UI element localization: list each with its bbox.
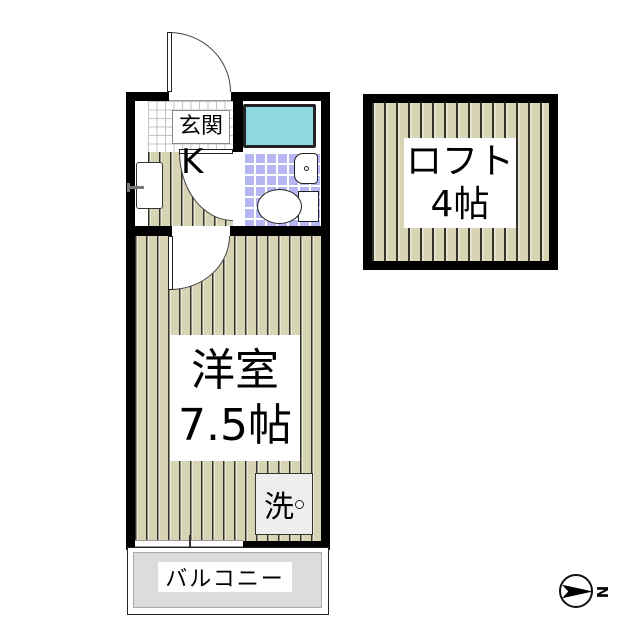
bathtub [243, 104, 316, 148]
washing-machine-box: 洗 [255, 473, 313, 535]
washer-circle-icon [295, 500, 304, 509]
entrance-door-swing-arc [169, 32, 231, 92]
balcony-label-box: バルコニー [158, 562, 292, 592]
floor-plan: 玄関 K 洋室 7.5帖 洗 バルコニー ロフト [0, 0, 640, 640]
balcony: バルコニー [127, 547, 329, 615]
sink-drain-icon [304, 166, 309, 171]
main-room-name: 洋室 [191, 343, 279, 399]
main-room-doorway-gap [172, 226, 230, 236]
faucet-handle-icon [127, 183, 130, 192]
loft-size: 4帖 [431, 184, 490, 226]
kitchen-label: K [181, 144, 203, 180]
balcony-label: バルコニー [165, 561, 285, 593]
entrance-label-box: 玄関 [172, 110, 230, 144]
entrance-label: 玄関 [179, 116, 223, 138]
faucet-icon [128, 186, 144, 189]
main-room-size: 7.5帖 [178, 399, 292, 453]
toilet-bowl-icon [257, 189, 302, 224]
main-room-door-leaf [168, 236, 173, 290]
main-room-label-box: 洋室 7.5帖 [170, 335, 300, 461]
bathroom-doorway [233, 152, 243, 226]
entrance-door-leaf [167, 32, 172, 92]
north-label: N [594, 584, 610, 600]
entrance-doorway-gap [169, 92, 231, 101]
laundry-label: 洗 [264, 482, 294, 526]
loft-name: ロフト [406, 140, 514, 184]
loft-label-box: ロフト 4帖 [404, 138, 516, 228]
